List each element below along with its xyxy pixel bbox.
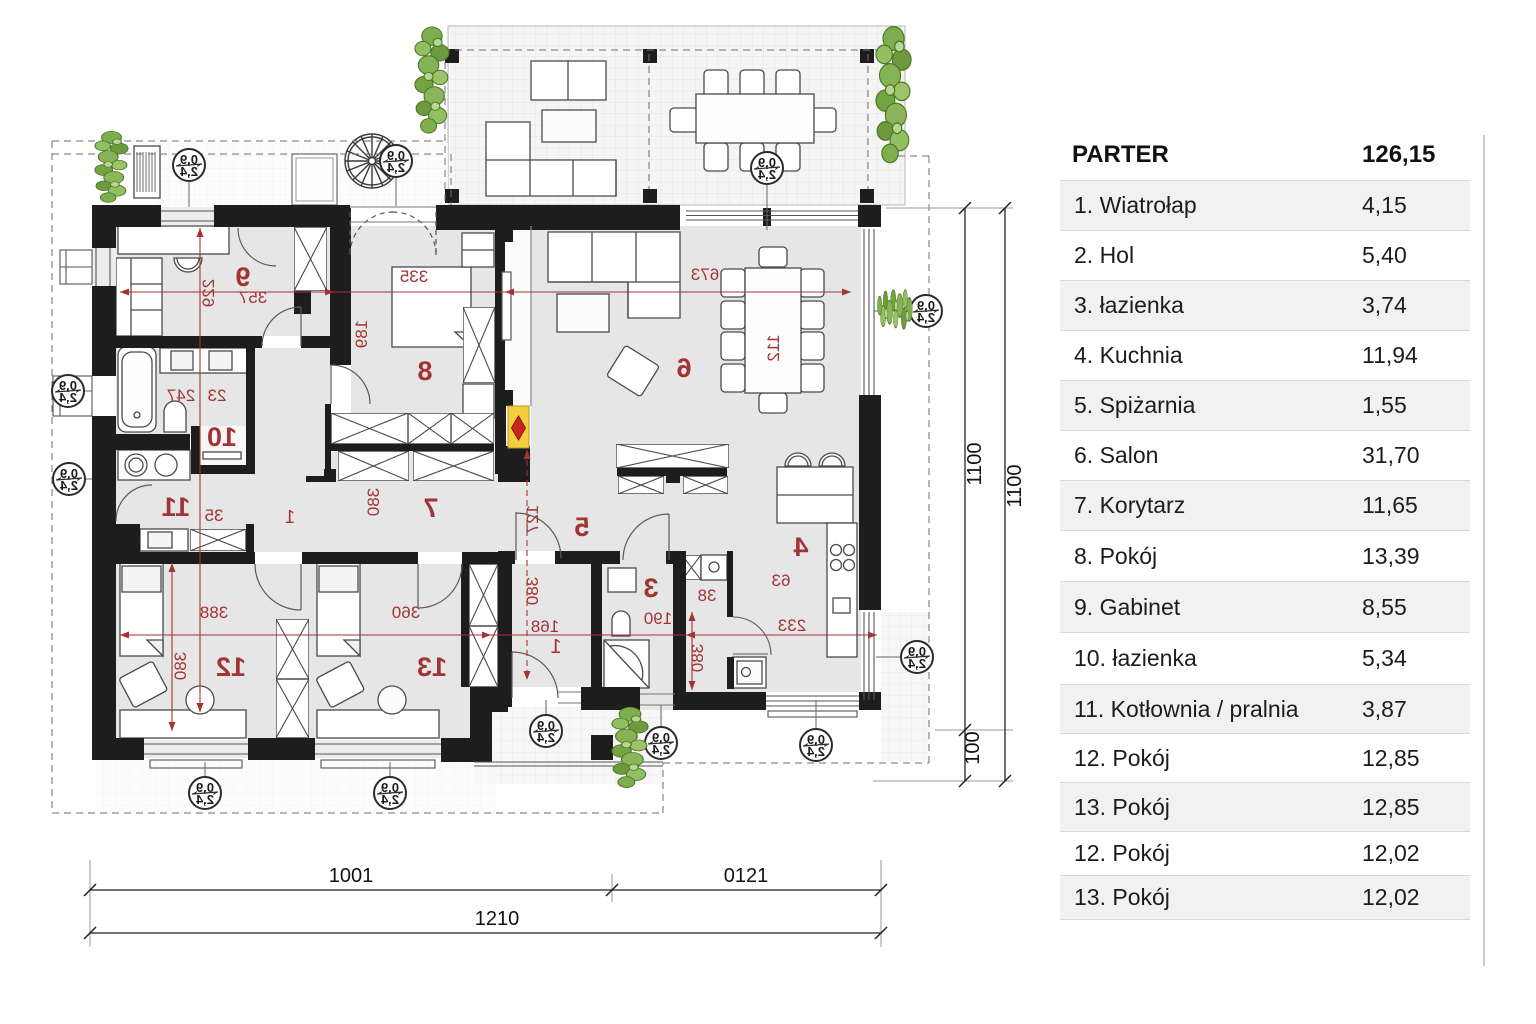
svg-text:11: 11 [162,492,191,522]
svg-text:380: 380 [688,644,707,672]
svg-text:1100: 1100 [1004,464,1026,507]
svg-text:189: 189 [352,320,371,348]
svg-text:380: 380 [171,652,190,680]
svg-text:38: 38 [698,586,717,605]
svg-text:10: 10 [207,422,237,452]
svg-text:127: 127 [523,505,542,533]
svg-text:8: 8 [417,356,432,386]
svg-text:3: 3 [643,573,658,603]
svg-text:190: 190 [644,609,672,628]
svg-text:6: 6 [676,353,691,383]
svg-text:360: 360 [392,603,420,622]
svg-text:12: 12 [216,652,246,682]
svg-text:1: 1 [285,507,295,527]
svg-text:23: 23 [208,386,227,405]
svg-text:13: 13 [417,652,447,682]
svg-text:1: 1 [550,636,561,658]
svg-text:1001: 1001 [329,865,374,887]
svg-text:380: 380 [364,488,383,516]
svg-text:4: 4 [793,532,808,562]
svg-text:7: 7 [423,493,438,523]
svg-text:112: 112 [764,334,783,361]
svg-text:247: 247 [167,386,195,405]
svg-text:168: 168 [531,617,559,636]
svg-text:63: 63 [772,571,791,590]
svg-text:335: 335 [400,267,428,286]
svg-text:1210: 1210 [475,908,520,930]
svg-text:229: 229 [199,279,218,307]
svg-text:5: 5 [574,512,589,542]
svg-text:100: 100 [962,731,984,764]
svg-text:0121: 0121 [724,865,769,887]
svg-text:673: 673 [691,265,719,284]
svg-text:35: 35 [205,506,224,525]
svg-text:357: 357 [239,288,267,307]
svg-text:233: 233 [778,616,806,635]
svg-text:388: 388 [200,603,228,622]
svg-text:1100: 1100 [964,442,986,485]
svg-text:380: 380 [523,577,542,605]
